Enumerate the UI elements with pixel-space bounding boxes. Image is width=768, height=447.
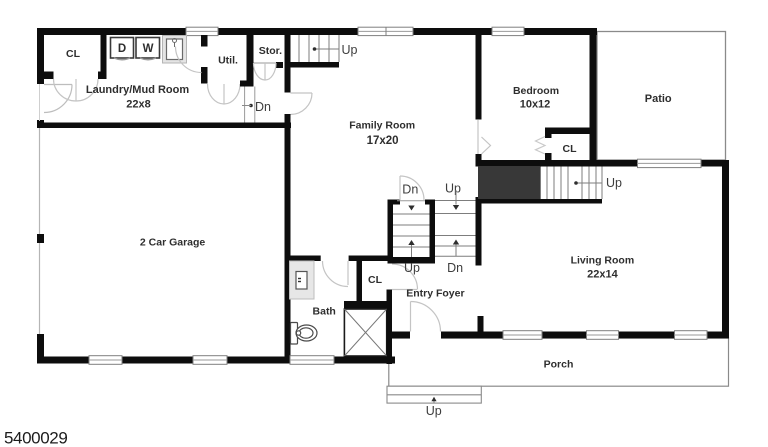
svg-text:Dn: Dn (447, 261, 463, 275)
svg-text:Up: Up (426, 404, 442, 418)
svg-text:5400029: 5400029 (4, 429, 67, 447)
svg-text:Living Room: Living Room (571, 255, 635, 267)
svg-text:Dn: Dn (255, 100, 271, 114)
svg-text:2 Car Garage: 2 Car Garage (140, 236, 206, 248)
svg-text:Up: Up (342, 43, 358, 57)
svg-text:D: D (118, 43, 126, 55)
svg-text:Laundry/Mud Room: Laundry/Mud Room (86, 84, 189, 96)
svg-text:CL: CL (368, 274, 383, 286)
svg-text:22x14: 22x14 (587, 268, 618, 280)
svg-text:W: W (143, 43, 154, 55)
svg-text:Family Room: Family Room (349, 120, 415, 132)
svg-text:Up: Up (445, 182, 461, 196)
svg-text:Patio: Patio (645, 93, 672, 105)
svg-text:10x12: 10x12 (520, 98, 551, 110)
svg-text:Up: Up (606, 176, 622, 190)
svg-text:Entry Foyer: Entry Foyer (406, 288, 464, 300)
svg-text:Dn: Dn (402, 183, 418, 197)
svg-text:CL: CL (66, 48, 81, 60)
svg-text:Util.: Util. (218, 55, 238, 67)
svg-text:Up: Up (404, 261, 420, 275)
svg-text:Bedroom: Bedroom (513, 85, 559, 97)
svg-text:Bath: Bath (313, 306, 336, 318)
svg-text:CL: CL (563, 143, 578, 155)
svg-text:22x8: 22x8 (126, 99, 150, 111)
svg-text:17x20: 17x20 (367, 135, 399, 147)
svg-text:Stor.: Stor. (259, 45, 282, 57)
svg-text:Porch: Porch (544, 359, 574, 371)
